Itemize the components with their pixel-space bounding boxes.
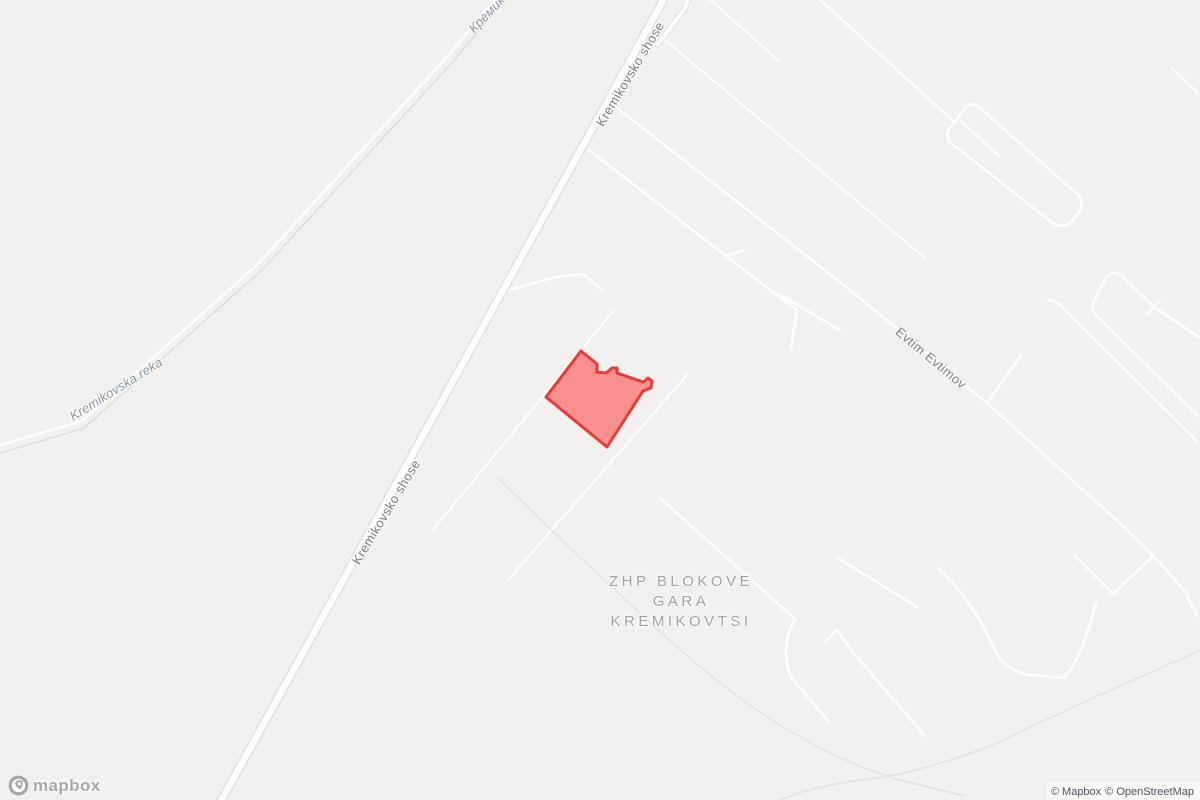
attribution-bar: © Mapbox © OpenStreetMap xyxy=(1046,783,1200,800)
faint-curves xyxy=(498,478,1200,800)
minor-roads xyxy=(432,0,1200,736)
attribution-mapbox-link[interactable]: © Mapbox xyxy=(1051,786,1101,798)
mapbox-logo-icon xyxy=(8,775,29,796)
map-vector-layer xyxy=(0,0,1200,800)
river-line xyxy=(0,0,506,455)
mapbox-logo[interactable]: mapbox xyxy=(8,775,101,796)
map-canvas[interactable]: Kremikovsko shose Kremikovsko shose Evti… xyxy=(0,0,1200,800)
mapbox-logo-wordmark: mapbox xyxy=(33,775,101,796)
attribution-osm-link[interactable]: © OpenStreetMap xyxy=(1105,786,1194,798)
